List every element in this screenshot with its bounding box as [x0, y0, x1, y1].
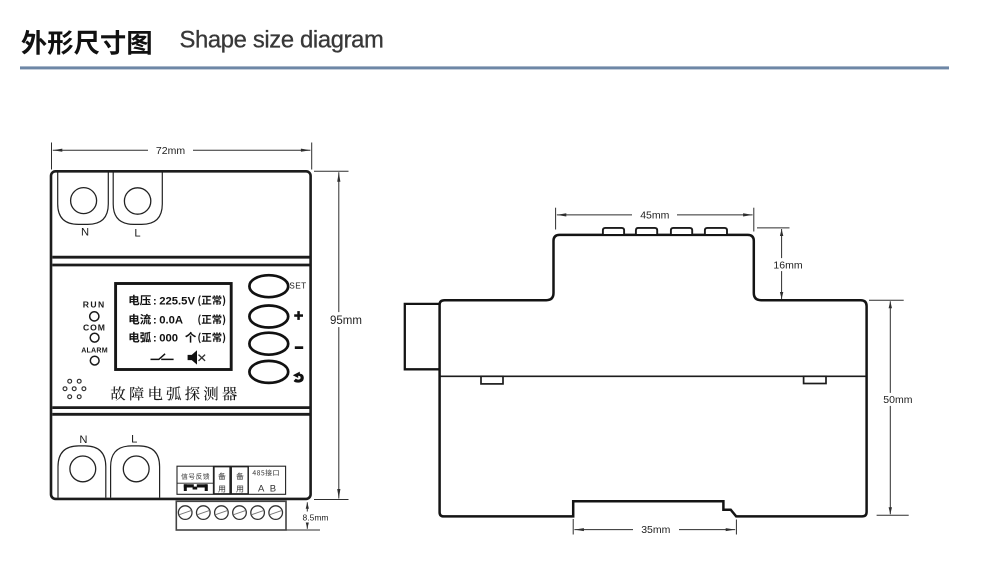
svg-text::: :: [153, 333, 157, 345]
svg-text:B: B: [270, 484, 276, 495]
svg-text:35mm: 35mm: [641, 524, 670, 536]
svg-text:RUN: RUN: [83, 300, 106, 310]
svg-text:ALARM: ALARM: [81, 347, 108, 355]
svg-text:COM: COM: [83, 322, 106, 332]
svg-text:225.5V: 225.5V: [159, 295, 195, 307]
svg-text:16mm: 16mm: [773, 259, 802, 271]
svg-text:A: A: [258, 484, 265, 495]
svg-text:SET: SET: [289, 281, 306, 291]
svg-text:L: L: [131, 434, 137, 446]
svg-text::: :: [153, 315, 157, 327]
svg-text:N: N: [81, 226, 89, 238]
svg-text:L: L: [134, 228, 140, 240]
svg-text:72mm: 72mm: [156, 145, 185, 157]
svg-text:8.5mm: 8.5mm: [303, 512, 329, 522]
svg-text:50mm: 50mm: [883, 394, 912, 406]
svg-text:000: 000: [159, 333, 178, 345]
svg-text:Shape size diagram: Shape size diagram: [180, 27, 384, 54]
svg-text::: :: [153, 295, 157, 307]
svg-text:95mm: 95mm: [330, 315, 362, 327]
svg-text:0.0A: 0.0A: [159, 315, 183, 327]
svg-text:45mm: 45mm: [640, 210, 669, 222]
svg-text:N: N: [79, 434, 87, 446]
